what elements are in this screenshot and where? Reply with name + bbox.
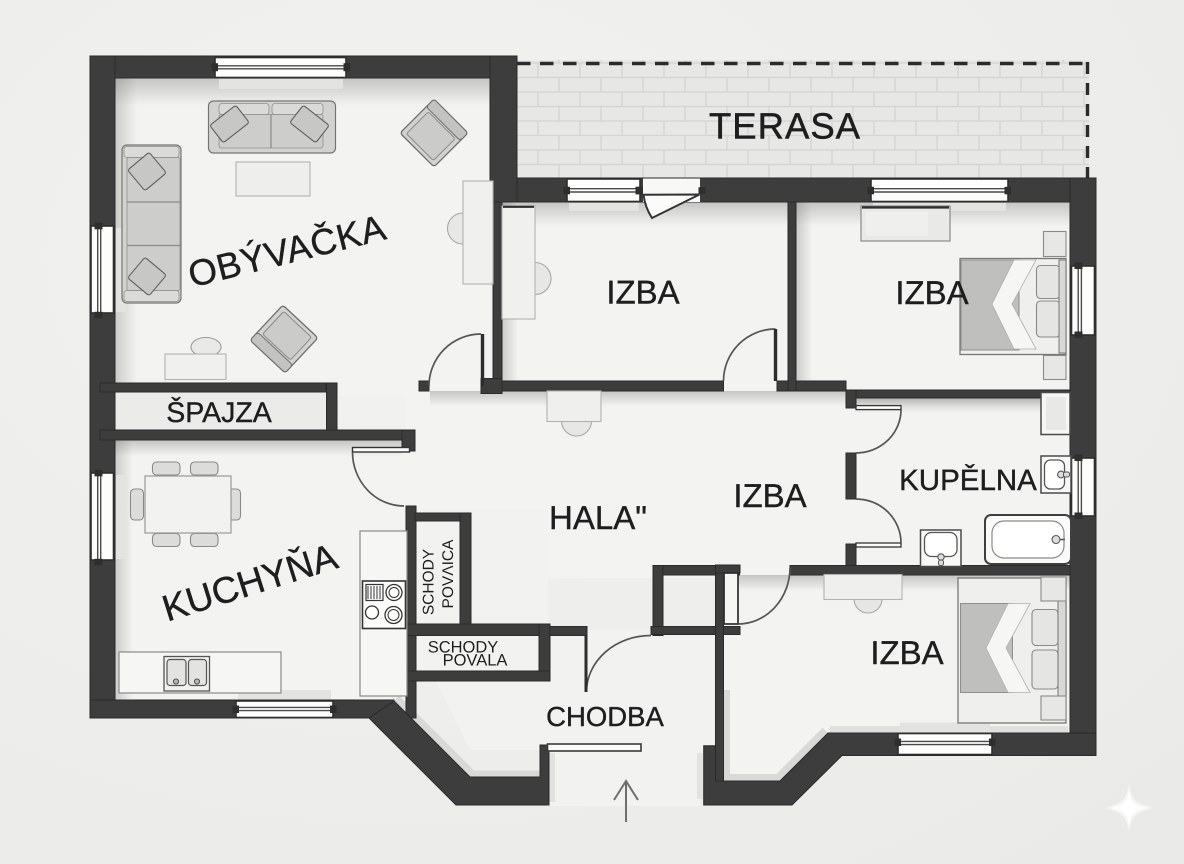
svg-text:SCHODY: SCHODY — [421, 549, 438, 615]
svg-text:POVΛICA: POVΛICA — [440, 539, 457, 609]
svg-text:POVALA: POVALA — [443, 652, 508, 670]
svg-text:ŠPAJZA: ŠPAJZA — [166, 397, 272, 429]
svg-text:HALA": HALA" — [549, 499, 647, 536]
svg-text:IZBA: IZBA — [870, 634, 943, 671]
svg-text:KUPĚLNA: KUPĚLNA — [899, 464, 1037, 497]
svg-text:IZBA: IZBA — [733, 477, 806, 514]
svg-text:IZBA: IZBA — [606, 274, 679, 311]
svg-text:CHODBA: CHODBA — [546, 701, 664, 732]
svg-text:TERASA: TERASA — [709, 106, 861, 147]
svg-text:IZBA: IZBA — [895, 274, 968, 311]
